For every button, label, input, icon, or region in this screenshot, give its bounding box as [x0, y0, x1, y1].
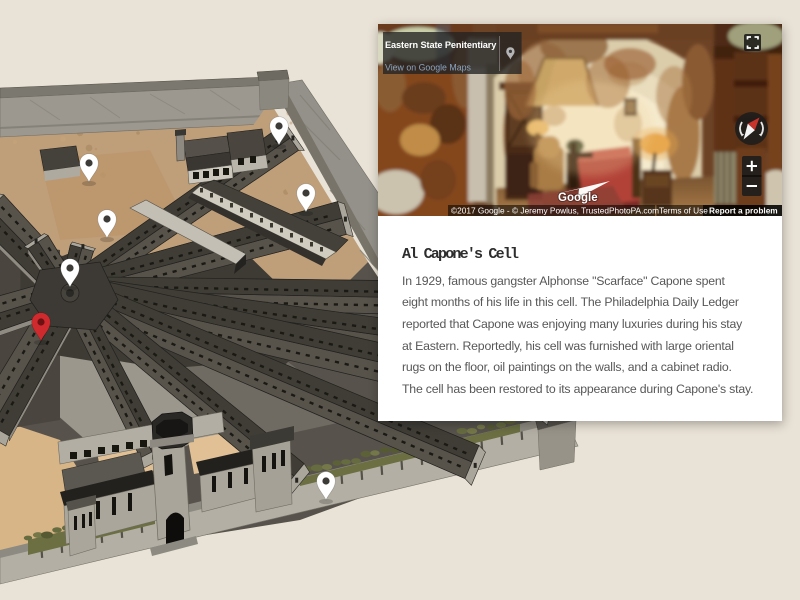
svg-text:Terms of Use: Terms of Use — [659, 206, 708, 216]
svg-text:Google: Google — [558, 192, 598, 204]
svg-text:Report a problem: Report a problem — [709, 206, 778, 216]
svg-text:©2017 Google - © Jeremy Powlus: ©2017 Google - © Jeremy Powlus, TrustedP… — [451, 206, 659, 216]
svg-text:Eastern State Penitentiary: Eastern State Penitentiary — [385, 40, 497, 50]
svg-text:View on Google Maps: View on Google Maps — [385, 63, 472, 73]
